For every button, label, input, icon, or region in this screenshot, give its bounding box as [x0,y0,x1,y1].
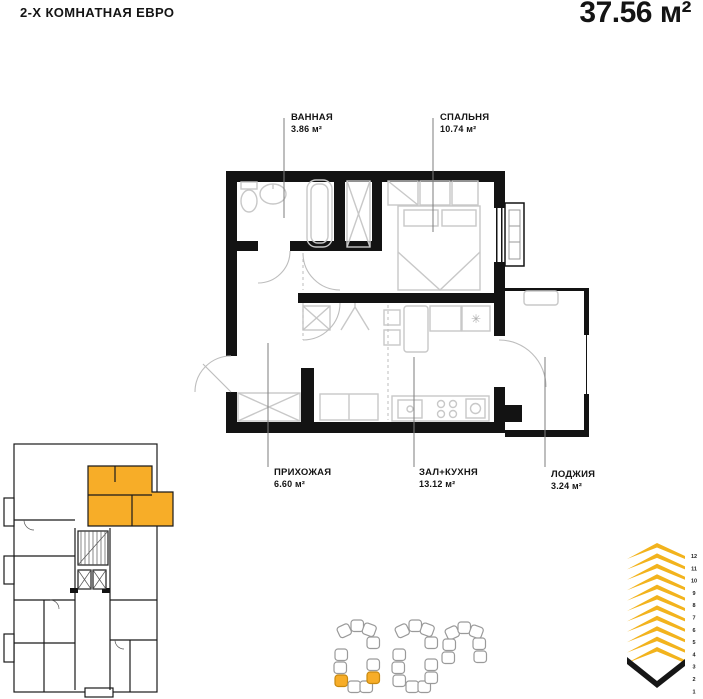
room-name: СПАЛЬНЯ [440,112,489,124]
floor-mini-plan[interactable] [4,444,173,697]
site-block[interactable] [425,672,438,684]
floor-level-selected[interactable] [627,657,685,688]
closet [347,181,370,247]
site-block[interactable] [442,652,455,664]
room-name: ЗАЛ+КУХНЯ [419,467,478,479]
doors [195,251,546,392]
room-name: ЛОДЖИЯ [551,469,595,481]
site-block-highlighted[interactable] [335,675,348,687]
floor-number[interactable]: 12 [691,554,697,560]
kitchen-furniture: ✳ [303,303,490,421]
site-block[interactable] [458,622,471,634]
room-label-loggia: ЛОДЖИЯ 3.24 м² [551,469,595,493]
building-2[interactable] [392,620,438,693]
bathroom-fixtures [241,180,332,247]
floor-number[interactable]: 3 [692,665,695,671]
building-3[interactable] [442,622,487,664]
site-block[interactable] [351,620,364,632]
highlighted-apartment[interactable] [88,466,173,526]
room-label-kitchen: ЗАЛ+КУХНЯ 13.12 м² [419,467,478,491]
floor-number[interactable]: 7 [692,616,695,622]
site-block[interactable] [335,649,348,661]
floor-selector[interactable]: 121110987654321 [627,543,697,695]
floor-number[interactable]: 2 [692,677,695,683]
loggia-bench [524,291,558,305]
floor-number[interactable]: 10 [691,579,697,585]
site-block[interactable] [348,681,361,693]
site-block[interactable] [474,651,487,663]
fridge-icon: ✳ [471,312,481,326]
floor-number[interactable]: 8 [692,603,695,609]
stove [438,401,445,408]
room-label-bedroom: СПАЛЬНЯ 10.74 м² [440,112,489,136]
site-block[interactable] [409,620,422,632]
site-block-highlighted[interactable] [367,672,380,684]
building-1[interactable] [334,620,380,693]
room-area: 10.74 м² [440,124,489,136]
site-block[interactable] [367,659,380,671]
site-block[interactable] [336,623,352,639]
site-block[interactable] [406,681,419,693]
room-area: 3.24 м² [551,481,595,493]
site-block[interactable] [473,638,486,650]
floor-number[interactable]: 4 [692,652,696,658]
floor-number[interactable]: 6 [692,628,695,634]
bedroom-furniture [388,181,480,290]
total-area: 37.56 м² [579,0,691,30]
site-block[interactable] [393,649,406,661]
site-block[interactable] [367,637,380,649]
floor-number[interactable]: 9 [692,591,695,597]
site-block[interactable] [443,639,456,651]
main-floor-plan: ✳ [195,118,589,467]
room-label-hallway: ПРИХОЖАЯ 6.60 м² [274,467,331,491]
floor-number[interactable]: 5 [692,640,695,646]
site-block[interactable] [425,637,438,649]
mini-plan-stairs [78,531,108,565]
site-block[interactable] [393,675,406,687]
floor-level[interactable] [627,647,685,663]
site-block[interactable] [334,662,347,674]
bed [398,206,480,290]
room-label-bathroom: ВАННАЯ 3.86 м² [291,112,333,136]
hallway-wardrobe [238,393,300,421]
site-plan[interactable] [334,620,487,693]
floor-number[interactable]: 11 [691,566,697,572]
sink [398,400,422,418]
page-graphics: ✳ [0,0,703,699]
floor-number[interactable]: 1 [692,689,695,695]
room-name: ВАННАЯ [291,112,333,124]
site-block[interactable] [392,662,405,674]
room-area: 3.86 м² [291,124,333,136]
room-name: ПРИХОЖАЯ [274,467,331,479]
bedroom-window [494,203,524,266]
site-block[interactable] [425,659,438,671]
room-area: 6.60 м² [274,479,331,491]
page-title: 2-Х КОМНАТНАЯ ЕВРО [20,5,174,20]
site-block[interactable] [394,623,410,639]
room-area: 13.12 м² [419,479,478,491]
